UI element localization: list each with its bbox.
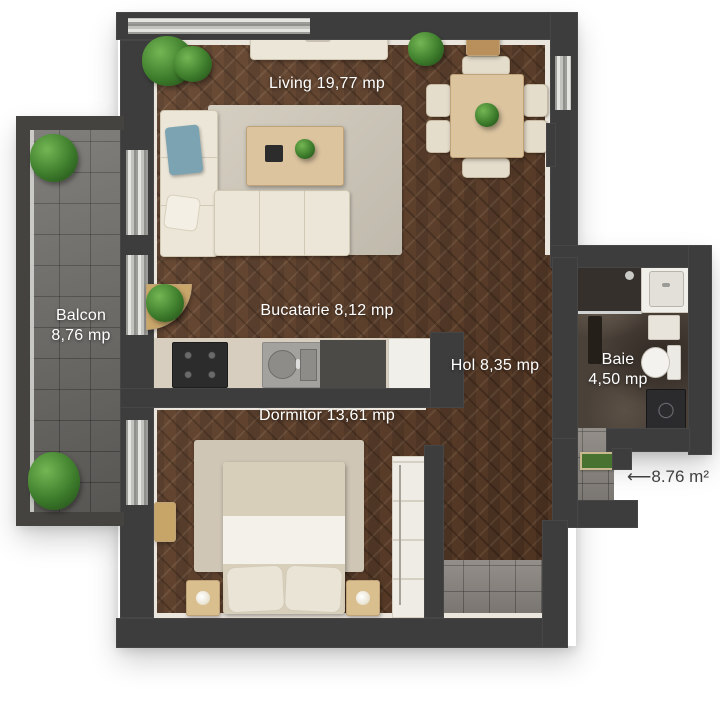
plant-kitchen-shelf — [146, 284, 184, 322]
sofa-seat — [214, 190, 350, 256]
label-baie: Baie 4,50 mp — [588, 350, 647, 390]
shower-head — [625, 271, 634, 280]
coffee-table — [246, 126, 344, 186]
entry-hall-floor — [437, 560, 545, 618]
label-balcon-area: 8,76 mp — [51, 327, 110, 344]
wardrobe — [392, 456, 426, 618]
coffee-table-plant — [295, 139, 315, 159]
window-balcony-lower — [126, 420, 148, 505]
window-balcony-middle — [126, 255, 148, 335]
sofa-blue-throw — [165, 124, 204, 175]
dining-chair — [426, 84, 451, 117]
sink-rect-basin — [300, 349, 317, 381]
label-balcon: Balcon 8,76 mp — [51, 306, 110, 346]
kitchen-sink — [262, 342, 322, 388]
wall-kitchen-south — [120, 388, 464, 408]
floor-plan-canvas: Living 19,77 mp Bucatarie 8,12 mp Balcon… — [0, 0, 720, 720]
bed — [223, 462, 345, 614]
wall-right-lower — [542, 520, 568, 648]
window-balcony-upper — [126, 150, 148, 235]
bathroom-vanity — [641, 264, 692, 313]
washing-machine — [646, 389, 686, 432]
wall-bathroom-right — [688, 245, 712, 455]
nightstand-lamp — [356, 591, 370, 605]
label-dormitor: Dormitor 13,61 mp — [259, 406, 395, 426]
dining-table-plant — [475, 103, 499, 127]
label-baie-area: 4,50 mp — [588, 371, 647, 388]
stove-cooktop — [172, 342, 228, 388]
label-hol: Hol 8,35 mp — [451, 356, 539, 376]
doormat — [580, 452, 614, 470]
label-balcon-name: Balcon — [56, 307, 106, 324]
sink-faucet — [296, 359, 300, 369]
wall-living-right-niche — [546, 123, 556, 167]
sofa-seam — [304, 191, 305, 255]
sink-round-basin — [268, 350, 297, 379]
label-living: Living 19,77 mp — [269, 74, 385, 94]
radiator-living-right — [555, 56, 571, 110]
shower — [576, 264, 642, 314]
dining-table — [450, 74, 524, 158]
sofa-pillow — [163, 194, 201, 232]
label-bucatarie: Bucatarie 8,12 mp — [260, 301, 393, 321]
wall-entry-left — [552, 438, 578, 528]
entrance-area-annotation: ⟵8.76 m² — [627, 467, 709, 487]
plant-balcony-top — [30, 134, 78, 182]
wall-bedroom-hall — [424, 445, 444, 618]
bathroom-cabinet — [648, 315, 680, 340]
bed-pillow-left — [226, 565, 285, 614]
balcony-wall-top — [16, 116, 124, 130]
plant-top-wall — [408, 32, 444, 66]
dining-chair — [462, 158, 510, 178]
bedroom-wall-cabinet — [154, 502, 176, 542]
balcony-wall-left — [16, 116, 30, 526]
kitchen-appliance — [388, 338, 434, 392]
dining-chair — [523, 84, 548, 117]
bed-sheet — [223, 516, 345, 564]
kitchen-counter-dark-section — [320, 340, 386, 388]
nightstand-lamp — [196, 591, 210, 605]
balcony-railing-glass — [30, 130, 34, 512]
nightstand-right — [346, 580, 380, 616]
dining-chair — [462, 56, 510, 76]
window-top-wall — [128, 18, 310, 34]
plant-balcony-bottom — [28, 452, 80, 510]
balcony-wall-bottom — [16, 512, 124, 526]
nightstand-left — [186, 580, 220, 616]
label-baie-name: Baie — [602, 351, 635, 368]
wall-bathroom-left — [552, 257, 578, 440]
dining-chair — [426, 120, 451, 153]
plant-living-corner-2 — [174, 46, 212, 82]
bed-pillow-right — [284, 565, 343, 614]
bed-blanket — [223, 462, 345, 518]
vanity-faucet — [662, 283, 670, 287]
wardrobe-handle — [399, 465, 401, 605]
sofa-seam — [259, 191, 260, 255]
vanity-sink — [649, 271, 684, 307]
dining-chair — [523, 120, 548, 153]
coffee-table-tray — [265, 145, 283, 162]
wall-bottom — [116, 618, 568, 648]
